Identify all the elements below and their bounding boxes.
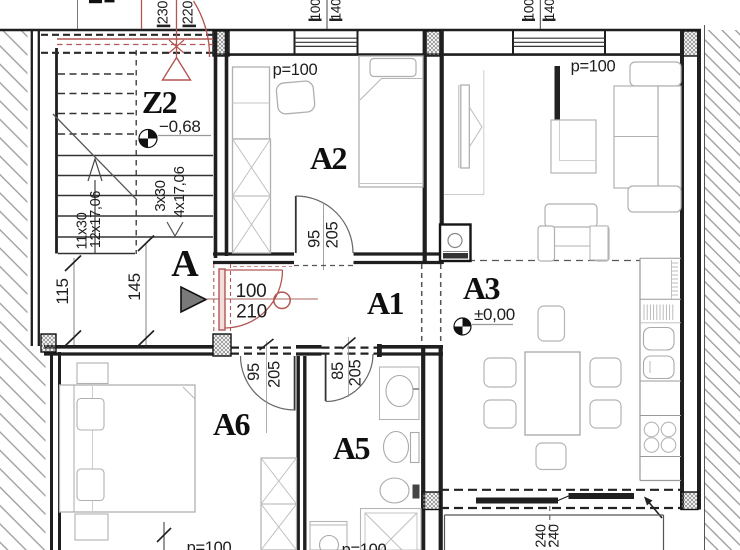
svg-text:3x30: 3x30 bbox=[152, 180, 169, 211]
svg-text:p=100: p=100 bbox=[273, 61, 318, 79]
svg-text:p=100: p=100 bbox=[187, 539, 232, 550]
svg-text:A2: A2 bbox=[310, 140, 347, 176]
svg-text:95: 95 bbox=[245, 363, 263, 381]
svg-text:Z2: Z2 bbox=[142, 84, 177, 120]
svg-text:100: 100 bbox=[308, 0, 323, 20]
svg-text:115: 115 bbox=[53, 278, 72, 304]
svg-text:140: 140 bbox=[542, 0, 557, 20]
svg-text:210: 210 bbox=[236, 302, 267, 323]
svg-text:240: 240 bbox=[547, 524, 563, 548]
svg-text:4x17,06: 4x17,06 bbox=[171, 166, 188, 217]
svg-text:A: A bbox=[171, 243, 199, 285]
svg-text:−0,68: −0,68 bbox=[159, 117, 201, 136]
svg-text:A5: A5 bbox=[333, 430, 370, 466]
svg-text:230: 230 bbox=[156, 1, 172, 25]
svg-text:220: 220 bbox=[181, 1, 197, 25]
svg-text:140: 140 bbox=[329, 0, 344, 20]
svg-text:p=100: p=100 bbox=[571, 58, 616, 76]
svg-text:12x17,06: 12x17,06 bbox=[88, 191, 104, 248]
svg-text:85: 85 bbox=[329, 362, 347, 380]
svg-text:205: 205 bbox=[347, 360, 365, 387]
svg-text:A6: A6 bbox=[213, 406, 251, 442]
svg-text:145: 145 bbox=[125, 273, 144, 300]
svg-text:A3: A3 bbox=[463, 270, 500, 306]
svg-text:A1: A1 bbox=[367, 285, 404, 321]
svg-text:±0,00: ±0,00 bbox=[474, 305, 515, 324]
svg-text:205: 205 bbox=[324, 222, 342, 249]
svg-text:p=100: p=100 bbox=[342, 541, 387, 550]
svg-text:100: 100 bbox=[236, 281, 267, 302]
svg-text:95: 95 bbox=[306, 230, 324, 248]
svg-text:100: 100 bbox=[521, 0, 536, 20]
svg-text:205: 205 bbox=[266, 361, 284, 388]
